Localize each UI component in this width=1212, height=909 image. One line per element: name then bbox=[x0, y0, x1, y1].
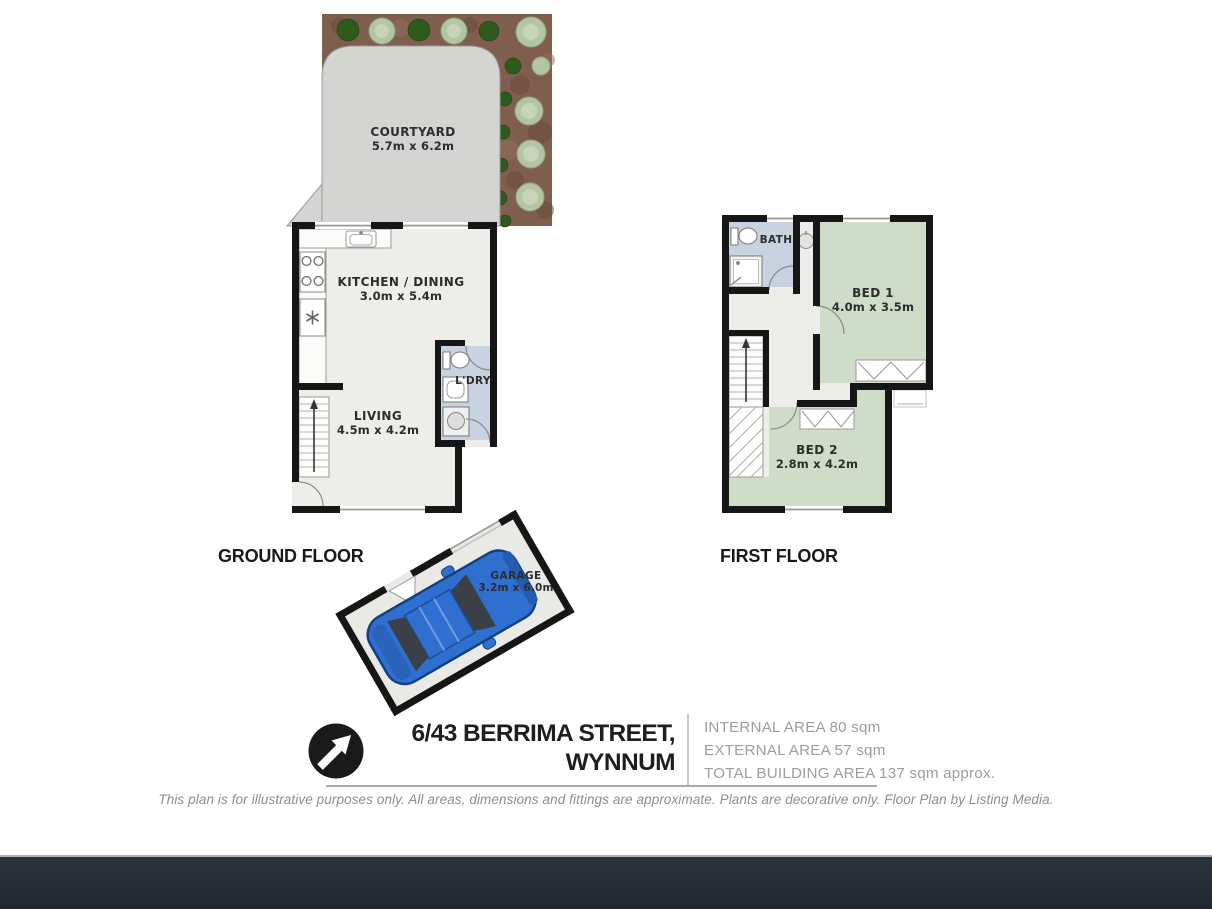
address-line2: WYNNUM bbox=[380, 748, 675, 777]
courtyard-label: COURTYARD 5.7m x 6.2m bbox=[370, 125, 455, 153]
shower-icon bbox=[730, 256, 762, 287]
garage-plan bbox=[335, 510, 574, 716]
area-internal: INTERNAL AREA 80 sqm bbox=[704, 716, 995, 739]
disclaimer-text: This plan is for illustrative purposes o… bbox=[0, 792, 1212, 807]
ground-floor-title: GROUND FLOOR bbox=[218, 546, 364, 567]
bottom-bar bbox=[0, 855, 1212, 909]
bed2-name: BED 2 bbox=[776, 443, 858, 457]
footer-rule bbox=[326, 785, 877, 787]
garage-label: GARAGE 3.2m x 6.0m bbox=[478, 570, 553, 594]
bed2-label: BED 2 2.8m x 4.2m bbox=[776, 443, 858, 471]
area-total: TOTAL BUILDING AREA 137 sqm approx. bbox=[704, 762, 995, 785]
stairs-ground bbox=[299, 397, 329, 477]
bath-label: BATH bbox=[760, 234, 793, 246]
toilet-icon bbox=[443, 352, 469, 369]
toilet-icon-bath bbox=[731, 228, 757, 245]
living-name: LIVING bbox=[337, 409, 419, 423]
courtyard-name: COURTYARD bbox=[370, 125, 455, 139]
address-block: 6/43 BERRIMA STREET, WYNNUM bbox=[380, 719, 675, 777]
north-arrow-icon bbox=[309, 724, 364, 779]
bed2-dims: 2.8m x 4.2m bbox=[776, 457, 858, 471]
floorplan-page: COURTYARD 5.7m x 6.2m KITCHEN / DINING 3… bbox=[0, 0, 1212, 909]
footer-divider bbox=[687, 714, 689, 786]
stairs-first bbox=[729, 336, 763, 477]
address-line1: 6/43 BERRIMA STREET, bbox=[380, 719, 675, 748]
first-floor-title: FIRST FLOOR bbox=[720, 546, 838, 567]
living-label: LIVING 4.5m x 4.2m bbox=[337, 409, 419, 437]
fridge-icon bbox=[300, 299, 325, 336]
wardrobe-bed2 bbox=[800, 409, 854, 429]
window-ledge bbox=[894, 390, 926, 407]
bed1-dims: 4.0m x 3.5m bbox=[832, 300, 914, 314]
stove-icon bbox=[300, 252, 325, 292]
laundry-name: L'DRY bbox=[455, 375, 491, 387]
bath-name: BATH bbox=[760, 234, 793, 246]
sink-icon bbox=[346, 231, 376, 247]
wardrobe-bed1 bbox=[856, 360, 926, 381]
courtyard-dims: 5.7m x 6.2m bbox=[370, 139, 455, 153]
ground-floor-plan bbox=[292, 222, 497, 513]
bed1-label: BED 1 4.0m x 3.5m bbox=[832, 286, 914, 314]
garage-dims: 3.2m x 6.0m bbox=[478, 582, 553, 594]
bed1-name: BED 1 bbox=[832, 286, 914, 300]
living-dims: 4.5m x 4.2m bbox=[337, 423, 419, 437]
washing-machine-icon bbox=[443, 407, 469, 436]
area-external: EXTERNAL AREA 57 sqm bbox=[704, 739, 995, 762]
kitchen-label: KITCHEN / DINING 3.0m x 5.4m bbox=[337, 275, 464, 303]
garage-name: GARAGE bbox=[478, 570, 553, 582]
kitchen-name: KITCHEN / DINING bbox=[337, 275, 464, 289]
laundry-label: L'DRY bbox=[455, 375, 491, 387]
area-summary: INTERNAL AREA 80 sqm EXTERNAL AREA 57 sq… bbox=[704, 716, 995, 785]
kitchen-dims: 3.0m x 5.4m bbox=[337, 289, 464, 303]
